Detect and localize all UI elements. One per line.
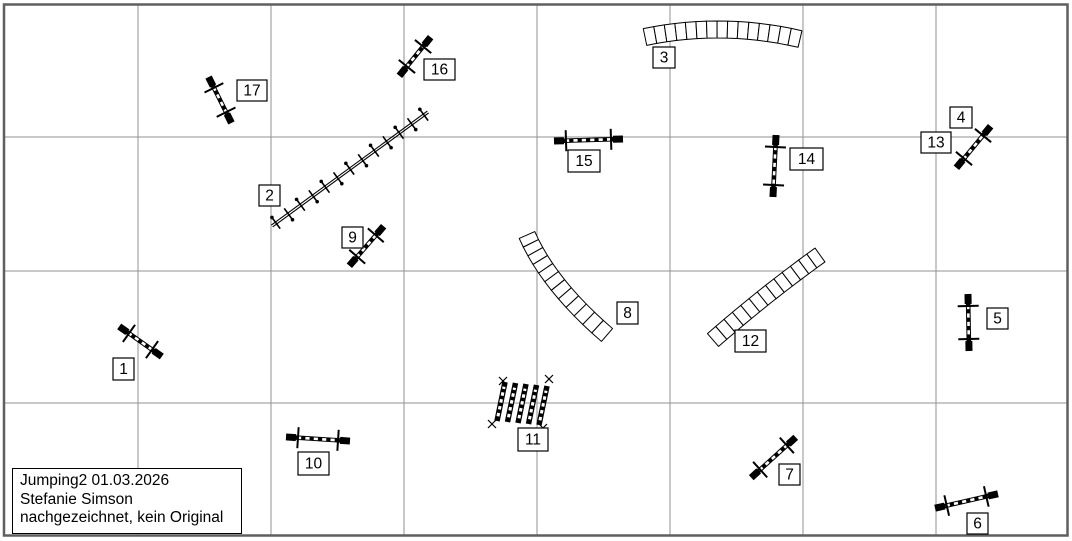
- tunnel-segment: [696, 21, 707, 38]
- tunnel-segment: [706, 21, 717, 38]
- jump-end-cap: [154, 351, 162, 357]
- obstacle-number-label[interactable]: 1: [113, 358, 134, 380]
- obstacle-jump-14[interactable]: 14: [763, 135, 823, 197]
- label-text: 7: [785, 467, 794, 484]
- obstacle-number-label[interactable]: 9: [342, 227, 363, 248]
- jump-end-cap: [751, 471, 758, 478]
- label-text: 3: [660, 50, 669, 67]
- jump-wing: [765, 146, 786, 147]
- obstacle-number-label[interactable]: 4: [950, 107, 972, 128]
- jump-wing: [763, 184, 784, 185]
- obstacle-weave-2[interactable]: 2: [259, 107, 429, 228]
- label-text: 1: [119, 361, 128, 378]
- label-text: 9: [348, 230, 357, 247]
- jump-end-cap: [286, 437, 296, 438]
- label-text: 12: [742, 333, 759, 350]
- jump-end-cap: [209, 77, 213, 86]
- jump-wing: [337, 430, 338, 451]
- obstacle-number-label[interactable]: 16: [424, 59, 455, 80]
- obstacle-number-label[interactable]: 5: [987, 308, 1008, 329]
- label-text: 11: [525, 432, 541, 449]
- obstacle-number-label[interactable]: 10: [298, 452, 329, 475]
- jump-wing: [566, 130, 567, 151]
- obstacle-number-label[interactable]: 15: [568, 150, 600, 172]
- obstacle-number-label[interactable]: 2: [259, 185, 280, 206]
- weave-pole-base: [340, 182, 344, 186]
- jump-end-cap: [119, 326, 127, 332]
- obstacle-jump-10[interactable]: 10: [286, 427, 350, 475]
- obstacle-number-label[interactable]: 17: [237, 80, 267, 101]
- obstacle-jump-7[interactable]: 7: [751, 437, 800, 485]
- obstacle-jump-17[interactable]: 17: [205, 77, 267, 123]
- jump-wing: [297, 427, 298, 448]
- jump-end-cap: [377, 226, 384, 234]
- label-text: 14: [798, 151, 816, 168]
- weave-pole-base: [393, 126, 397, 130]
- jump-end-cap: [349, 258, 356, 266]
- label-text: 16: [431, 62, 448, 79]
- jump-end-cap: [227, 114, 231, 123]
- label-text: 6: [973, 516, 982, 533]
- label-text: 4: [957, 110, 966, 127]
- jump-end-cap: [399, 68, 405, 76]
- obstacle-number-label[interactable]: 3: [653, 47, 675, 68]
- obstacle-number-label[interactable]: 8: [617, 302, 638, 324]
- course-canvas: 1234135678910111214151617: [0, 0, 1072, 541]
- label-text: 5: [993, 311, 1002, 328]
- jump-end-cap: [956, 160, 962, 168]
- course-title: Jumping2 01.03.2026: [20, 472, 235, 491]
- label-text: 17: [243, 83, 260, 100]
- weave-pole-base: [414, 128, 418, 132]
- weave-pole-base: [270, 216, 274, 220]
- tunnel-segment: [727, 21, 738, 38]
- tunnel-segment: [737, 22, 749, 40]
- obstacle-number-label[interactable]: 11: [518, 428, 548, 451]
- jump-end-cap: [788, 437, 795, 444]
- obstacle-number-label[interactable]: 14: [790, 148, 823, 170]
- obstacle-number-label[interactable]: 13: [921, 132, 951, 153]
- obstacle-tunnel-12[interactable]: 12: [707, 248, 825, 352]
- label-text: 8: [623, 305, 632, 322]
- tunnel-segment: [675, 22, 687, 40]
- jump-end-cap: [424, 37, 430, 45]
- course-info-box: Jumping2 01.03.2026 Stefanie Simson nach…: [12, 468, 242, 534]
- weave-pole-base: [369, 144, 373, 148]
- jump-end-cap: [988, 494, 998, 496]
- obstacle-tunnel-3[interactable]: 3: [643, 21, 802, 68]
- course-plan: 1234135678910111214151617 Jumping2 01.03…: [0, 0, 1072, 541]
- obstacle-jump-16[interactable]: 16: [399, 37, 455, 80]
- weave-pole-base: [418, 107, 422, 111]
- grid-layer: [3, 4, 1068, 536]
- jump-wing: [611, 129, 612, 150]
- course-note: nachgezeichnet, kein Original: [20, 509, 235, 528]
- obstacle-jump-9[interactable]: 9: [342, 226, 384, 266]
- obstacle-number-label[interactable]: 6: [967, 513, 988, 534]
- weave-pole-base: [389, 146, 393, 150]
- course-author: Stefanie Simson: [20, 491, 235, 510]
- weave-pole-base: [344, 162, 348, 166]
- tunnel-segment: [717, 21, 728, 38]
- obstacle-layer: 1234135678910111214151617: [113, 21, 1008, 534]
- weave-pole-base: [319, 180, 323, 184]
- obstacle-jump-15[interactable]: 15: [554, 129, 623, 172]
- label-text: 13: [927, 135, 944, 152]
- obstacle-jump-6[interactable]: 6: [935, 486, 998, 534]
- obstacle-jump-5[interactable]: 5: [958, 294, 1008, 351]
- weave-pole-base: [295, 198, 299, 202]
- tunnel-segment: [685, 22, 697, 40]
- jump-end-cap: [984, 126, 990, 134]
- weave-pole-base: [365, 164, 369, 168]
- jump-bar: [287, 437, 349, 441]
- label-text: 10: [305, 456, 323, 473]
- weave-pole-base: [291, 218, 295, 222]
- obstacle-number-label[interactable]: 7: [779, 464, 800, 485]
- jump-end-cap: [340, 440, 350, 441]
- label-text: 2: [265, 188, 274, 205]
- ring-border: [4, 5, 1068, 536]
- obstacle-number-label[interactable]: 12: [735, 330, 766, 352]
- label-text: 15: [575, 153, 592, 170]
- jump-end-cap: [935, 506, 945, 508]
- obstacle-longjump-11[interactable]: 11: [488, 375, 553, 451]
- weave-pole-base: [315, 200, 319, 204]
- obstacle-jump-1[interactable]: 1: [113, 325, 162, 380]
